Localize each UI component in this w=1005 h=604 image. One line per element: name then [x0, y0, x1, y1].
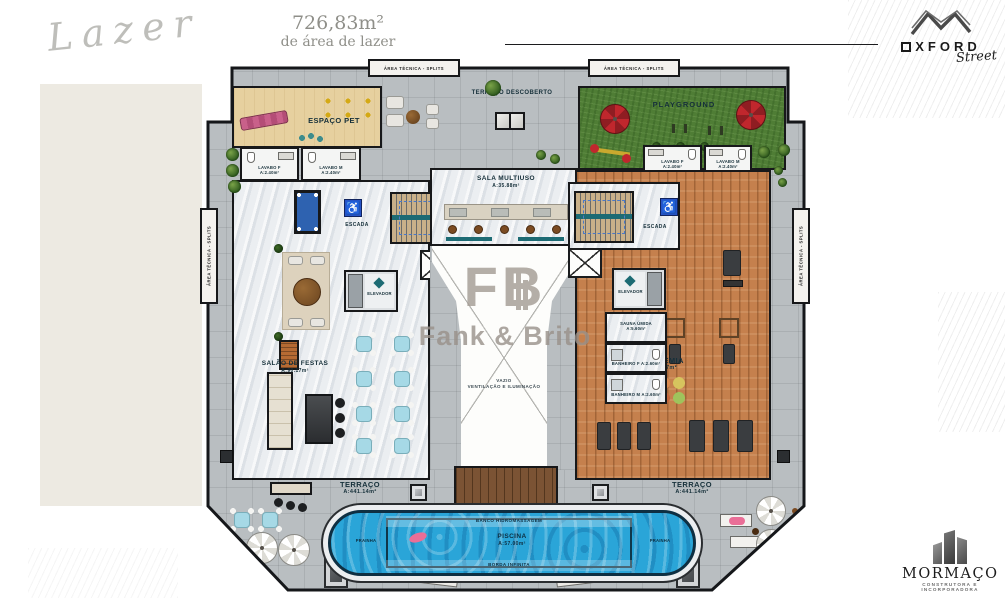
accessible-icon: ♿: [660, 198, 678, 216]
pool-deck: [454, 466, 558, 516]
plant: [228, 180, 241, 193]
multiuso-counter: [444, 204, 568, 220]
banheiro-f-label: BANHEIRO F: [612, 361, 640, 366]
lavabo-f-room: LAVABO F A:2.40m²: [643, 145, 702, 173]
party-table: [390, 402, 414, 426]
banheiro-m-area: A:2.60m²: [641, 392, 660, 397]
area-tecnica-box: ÁREA TÉCNICA - SPLITS: [588, 59, 680, 77]
leisure-area-callout: 726,83m² de área de lazer: [258, 12, 418, 50]
escada-label: ESCADA: [632, 224, 678, 230]
leisure-floorplan-page: Lazer 726,83m² de área de lazer XFORD St…: [0, 0, 1005, 604]
cream-panel: [40, 84, 202, 506]
lavabo-f-area: A:2.40m²: [260, 170, 279, 175]
mormaco-buildings-icon: [902, 528, 998, 564]
prainha-label: PRAINHA: [639, 539, 681, 544]
banheiro-m-label: BANHEIRO M: [611, 392, 640, 397]
area-tecnica-box: ÁREA TÉCNICA - SPLITS: [368, 59, 460, 77]
mormaco-tagline: CONSTRUTORA E INCORPORADORA: [902, 582, 998, 592]
red-umbrella-icon: [736, 100, 766, 130]
terrace-counter: [270, 482, 312, 495]
prainha-label: PRAINHA: [345, 539, 387, 544]
white-umbrella-icon: [278, 534, 310, 566]
buffet-counter: [267, 372, 293, 450]
dumbbell-rack: [723, 280, 743, 287]
lavabo-f-room: LAVABO F A:2.40m²: [240, 147, 299, 181]
banheiro-m-room: BANHEIRO M A:2.60m²: [605, 373, 667, 404]
vazio-label: VAZIO VENTILAÇÃO E ILUMINAÇÃO: [454, 378, 554, 389]
side-lines-decoration: [938, 292, 1005, 432]
plant: [550, 154, 560, 164]
lavabo-f-area: A:2.40m²: [663, 164, 682, 169]
banheiro-f-room: BANHEIRO F A:2.60m²: [605, 343, 667, 373]
sala-multiuso-label: SALA MULTIUSO A:35.88m²: [432, 175, 580, 189]
party-table: [390, 332, 414, 356]
stairs-right: [574, 191, 634, 243]
terrace-table: [230, 508, 254, 532]
mormaco-logo: MORMAÇO CONSTRUTORA E INCORPORADORA: [902, 528, 998, 592]
power-rack: [719, 318, 739, 338]
party-table: [352, 434, 376, 458]
espaco-pet-room: ESPAÇO PET: [232, 86, 382, 148]
banco-hidro-strip: BANCO HIDROMASSAGEM: [386, 516, 632, 527]
accessible-icon: ♿: [344, 199, 362, 217]
elevador-label: ELEVADOR: [616, 290, 645, 295]
side-table: [792, 508, 798, 514]
billiards-table: [294, 190, 321, 234]
white-umbrella-icon: [756, 496, 786, 526]
party-table: [352, 332, 376, 356]
elevator-shaft: [568, 248, 602, 278]
sauna-room: SAUNA ÚMIDA A:5.60m²: [605, 312, 667, 343]
plan-surface: ESPAÇO PET TERRAÇO DESCOBERTO: [200, 62, 810, 592]
terraco-label-left: TERRAÇO A:441.14m²: [300, 480, 420, 496]
plant: [536, 150, 546, 160]
plant: [758, 146, 770, 158]
banheiro-f-area: A:2.60m²: [641, 361, 660, 366]
pet-toys: [298, 132, 324, 144]
terraco-descoberto-label: TERRAÇO DESCOBERTO: [452, 90, 572, 98]
figure: [672, 124, 675, 133]
party-table: [390, 434, 414, 458]
salao-de-festas-label: SALÃO DE FESTAS A:90.17m²: [244, 360, 346, 374]
sala-multiuso-room: SALA MULTIUSO A:35.88m²: [430, 168, 578, 246]
plant: [774, 166, 783, 175]
party-table: [352, 402, 376, 426]
borda-strip: BORDA INFINITA: [386, 560, 632, 571]
oxford-street-logo: XFORD Street: [885, 8, 997, 67]
oxford-logo-mark: [908, 8, 974, 38]
twin-tables: [495, 112, 525, 130]
kitchen-island: [305, 394, 333, 444]
white-umbrella-icon: [246, 532, 278, 564]
lavabo-m-area: A:2.40m²: [321, 170, 340, 175]
escada-label: ESCADA: [334, 222, 380, 228]
plant: [778, 178, 787, 187]
terrace-table: [258, 508, 282, 532]
party-table: [352, 367, 376, 391]
sauna-area: A:5.60m²: [626, 326, 645, 331]
round-table: [406, 110, 420, 124]
pillar: [592, 484, 609, 501]
dining-set: [282, 252, 330, 330]
plant: [485, 80, 501, 96]
white-umbrella-icon: [756, 529, 786, 559]
elevador-left: ELEVADOR: [344, 270, 398, 312]
header-divider: [505, 44, 878, 45]
party-table: [390, 367, 414, 391]
gym-bench: [723, 344, 735, 364]
leisure-area-value: 726,83m²: [258, 12, 418, 34]
salao-de-festas-room: ♿ ESCADA ELEVADO: [232, 180, 430, 480]
pillar: [410, 484, 427, 501]
side-table: [792, 540, 798, 546]
plant: [226, 164, 239, 177]
mormaco-name: MORMAÇO: [902, 566, 998, 582]
elevador-label: ELEVADOR: [365, 292, 394, 297]
figure: [720, 126, 723, 135]
figure: [684, 124, 687, 133]
piscina: BANCO HIDROMASSAGEM PISCINA A:57.00m² PR…: [328, 510, 696, 576]
pet-bench: [239, 110, 289, 131]
area-tecnica-box: ÁREA TÉCNICA - SPLITS: [200, 208, 218, 304]
pet-agility-posts: [322, 96, 374, 122]
elevador-right: ELEVADOR: [612, 268, 666, 310]
terraco-label-right: TERRAÇO A:441.14m²: [632, 480, 752, 496]
plant: [226, 148, 239, 161]
lavabo-m-room: LAVABO M A:2.40m²: [704, 145, 752, 173]
floorplan: ESPAÇO PET TERRAÇO DESCOBERTO: [200, 62, 810, 592]
red-umbrella-icon: [600, 104, 630, 134]
leisure-area-caption: de área de lazer: [258, 34, 418, 50]
power-rack: [665, 318, 685, 338]
figure: [708, 126, 711, 135]
lavabo-m-room: LAVABO M A:2.40m²: [301, 147, 361, 181]
sun-lounger: [720, 514, 752, 527]
oxford-o-square-icon: [901, 42, 911, 52]
borda-infinita-label: BORDA INFINITA: [386, 562, 632, 568]
stairs-right-pocket: ♿ ESCADA: [568, 182, 680, 250]
piscina-label: PISCINA A:57.00m²: [462, 533, 562, 547]
area-tecnica-box: ÁREA TÉCNICA - SPLITS: [792, 208, 810, 304]
pillar: [777, 450, 790, 463]
bottom-lines-decoration: [28, 548, 178, 598]
pillar: [220, 450, 233, 463]
treadmill: [723, 250, 741, 276]
side-table: [752, 528, 759, 535]
banco-hidro-label: BANCO HIDROMASSAGEM: [386, 518, 632, 524]
plant: [778, 144, 790, 156]
lavabo-m-area: A:2.40m²: [718, 164, 737, 169]
central-void: VAZIO VENTILAÇÃO E ILUMINAÇÃO: [430, 246, 578, 470]
